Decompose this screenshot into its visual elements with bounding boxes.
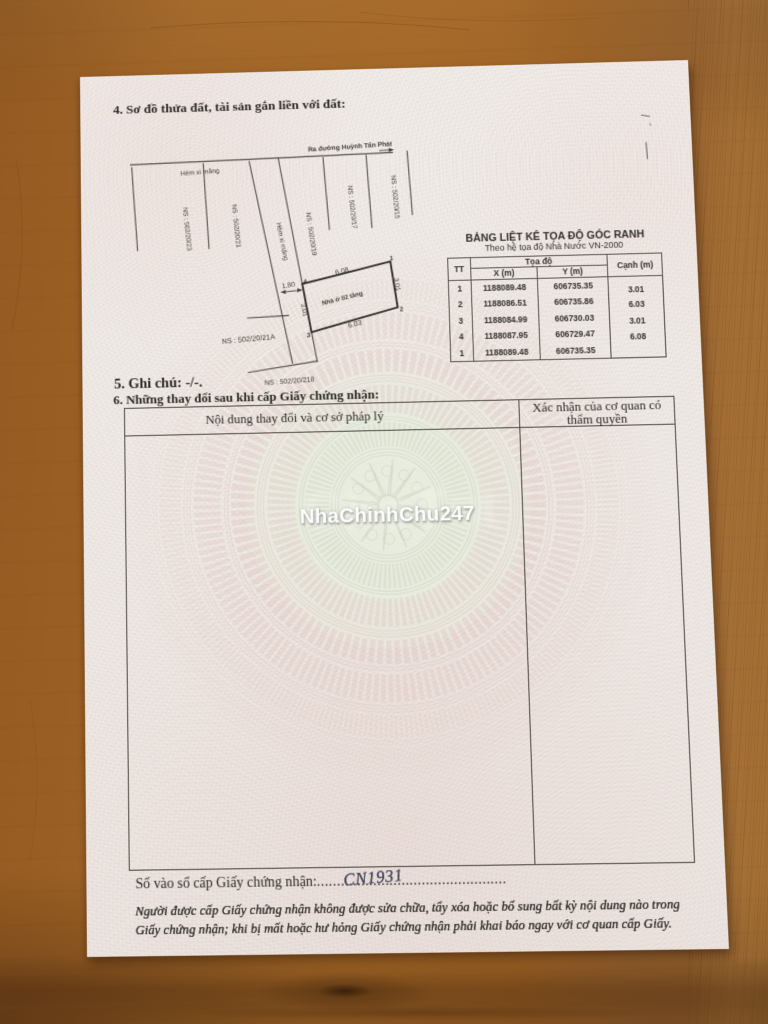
svg-text:NS : 502/20/15: NS : 502/20/15 xyxy=(389,175,401,219)
svg-text:Ra đường Huỳnh Tấn Phát: Ra đường Huỳnh Tấn Phát xyxy=(308,140,393,154)
svg-text:1: 1 xyxy=(390,255,395,262)
svg-text:Hẻm xi măng: Hẻm xi măng xyxy=(274,222,289,262)
svg-text:NS : 502/20/19: NS : 502/20/19 xyxy=(304,212,318,257)
svg-text:NS : 502/20/17: NS : 502/20/17 xyxy=(346,185,358,229)
svg-text:1.80: 1.80 xyxy=(281,281,296,290)
svg-text:NS : 502/20/23: NS : 502/20/23 xyxy=(181,207,193,251)
svg-text:Hẻm xi măng: Hẻm xi măng xyxy=(180,168,220,178)
svg-text:NS : 502/20/21: NS : 502/20/21 xyxy=(230,204,242,249)
